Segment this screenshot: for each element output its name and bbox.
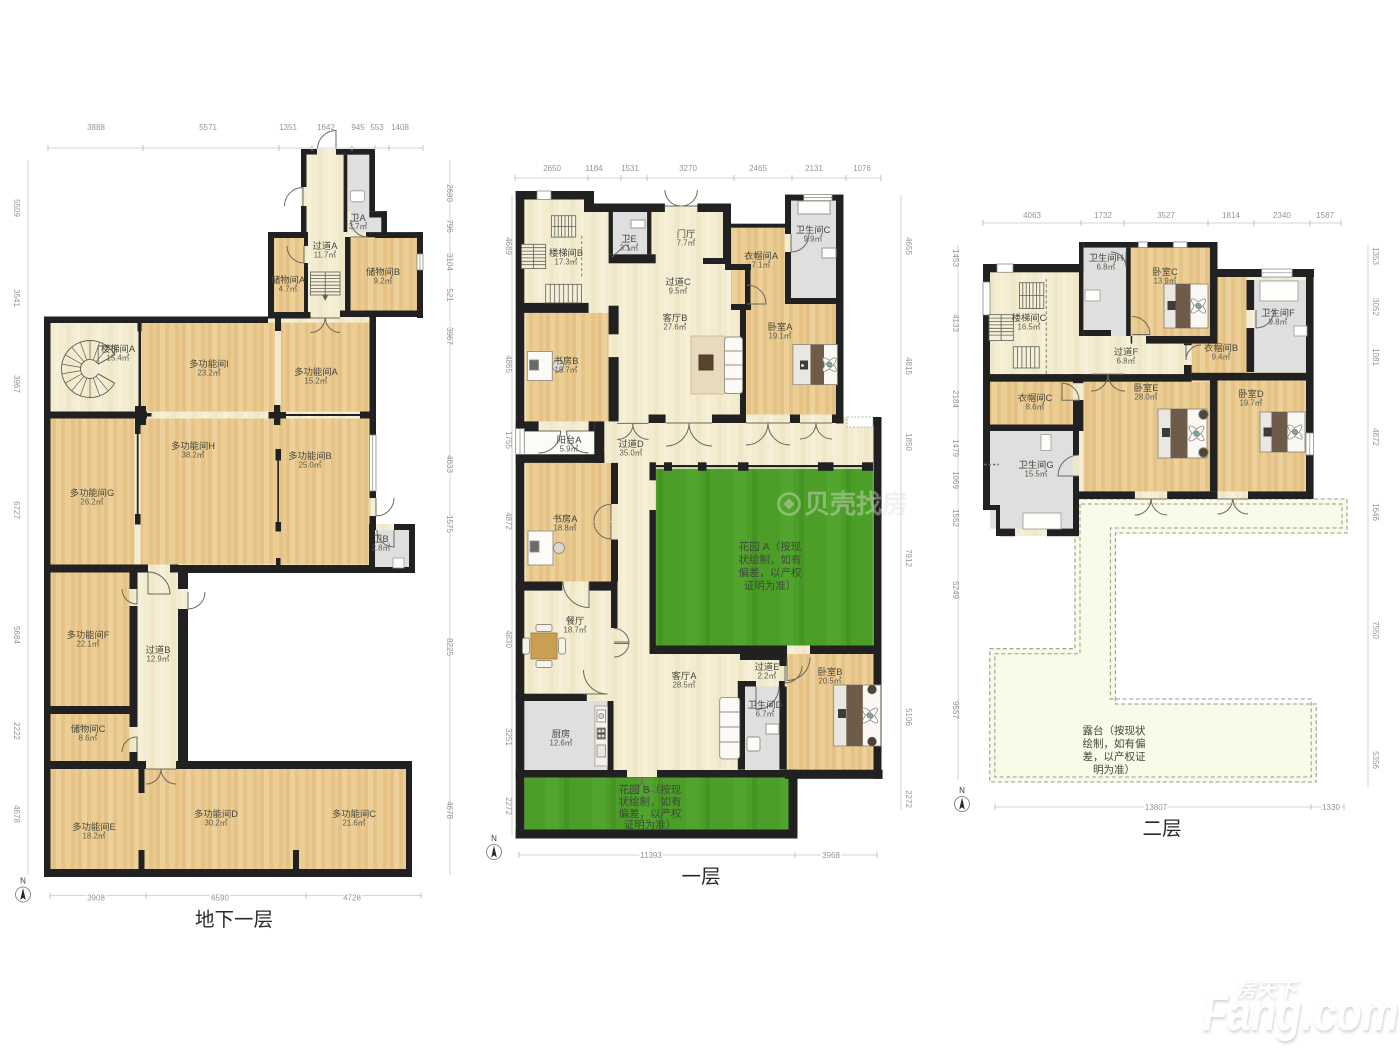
svg-text:9.4㎡: 9.4㎡ — [1212, 353, 1231, 362]
svg-text:553: 553 — [370, 123, 384, 132]
svg-text:衣帽间A: 衣帽间A — [744, 250, 779, 261]
svg-text:花园 B（按现: 花园 B（按现 — [619, 783, 682, 796]
svg-text:2222: 2222 — [12, 722, 21, 740]
svg-text:28.5㎡: 28.5㎡ — [673, 681, 696, 690]
svg-text:多功能间C: 多功能间C — [332, 808, 376, 819]
svg-text:2184: 2184 — [951, 390, 960, 408]
svg-text:1552: 1552 — [951, 509, 960, 527]
svg-text:11393: 11393 — [640, 851, 662, 860]
svg-text:4815: 4815 — [904, 357, 913, 375]
svg-text:3888: 3888 — [87, 123, 105, 132]
svg-text:8.6㎡: 8.6㎡ — [79, 734, 98, 743]
svg-text:过道E: 过道E — [755, 661, 780, 672]
svg-text:4.7㎡: 4.7㎡ — [279, 285, 298, 294]
svg-text:楼梯间C: 楼梯间C — [1012, 312, 1047, 323]
svg-text:4865: 4865 — [504, 355, 513, 373]
svg-text:1850: 1850 — [904, 433, 913, 451]
svg-text:20.5㎡: 20.5㎡ — [819, 677, 842, 686]
svg-text:2131: 2131 — [805, 164, 823, 173]
svg-text:卧室D: 卧室D — [1238, 388, 1264, 399]
svg-text:卧室E: 卧室E — [1134, 382, 1159, 393]
svg-text:Fang.com: Fang.com — [1202, 983, 1398, 1042]
svg-text:6.7㎡: 6.7㎡ — [756, 710, 775, 719]
svg-text:6590: 6590 — [211, 894, 229, 903]
svg-text:1353: 1353 — [1371, 247, 1380, 265]
svg-text:1646: 1646 — [1371, 503, 1380, 521]
svg-text:1479: 1479 — [951, 439, 960, 457]
svg-text:13.9㎡: 13.9㎡ — [1154, 277, 1177, 286]
svg-text:衣帽间B: 衣帽间B — [1204, 342, 1238, 353]
svg-text:2.2㎡: 2.2㎡ — [758, 672, 777, 681]
svg-text:945: 945 — [351, 123, 365, 132]
svg-text:1755: 1755 — [504, 431, 513, 449]
svg-text:4133: 4133 — [951, 314, 960, 332]
svg-text:521: 521 — [445, 288, 454, 302]
svg-text:30.2㎡: 30.2㎡ — [205, 819, 228, 828]
svg-text:3968: 3968 — [822, 851, 840, 860]
svg-text:多功能间I: 多功能间I — [189, 358, 229, 369]
svg-text:3052: 3052 — [1371, 298, 1380, 316]
svg-text:4872: 4872 — [1371, 428, 1380, 446]
svg-text:4678: 4678 — [445, 801, 454, 819]
svg-text:1408: 1408 — [391, 123, 409, 132]
svg-text:餐厅: 餐厅 — [566, 615, 585, 626]
svg-text:书房B: 书房B — [554, 355, 579, 366]
svg-text:证明为准）: 证明为准） — [744, 580, 797, 592]
svg-text:17.3㎡: 17.3㎡ — [555, 258, 578, 267]
svg-text:3967: 3967 — [445, 327, 454, 345]
svg-text:5.9㎡: 5.9㎡ — [560, 445, 579, 454]
svg-text:7.7㎡: 7.7㎡ — [677, 239, 696, 248]
svg-text:露台（按现状: 露台（按现状 — [1083, 724, 1146, 737]
svg-text:储物间C: 储物间C — [71, 723, 106, 734]
svg-text:贝壳找房: 贝壳找房 — [804, 489, 908, 519]
svg-text:18.7㎡: 18.7㎡ — [564, 626, 587, 635]
svg-text:4655: 4655 — [904, 237, 913, 255]
svg-text:4063: 4063 — [1023, 211, 1041, 220]
svg-text:6727: 6727 — [12, 501, 21, 519]
svg-text:1330: 1330 — [1322, 803, 1340, 812]
svg-text:5356: 5356 — [1371, 751, 1380, 769]
svg-text:储物间A: 储物间A — [271, 274, 306, 285]
svg-text:卫生间D: 卫生间D — [748, 699, 783, 710]
svg-text:卫生间G: 卫生间G — [1018, 459, 1053, 470]
svg-text:3270: 3270 — [679, 164, 697, 173]
svg-text:23.2㎡: 23.2㎡ — [198, 369, 221, 378]
svg-text:多功能间F: 多功能间F — [67, 629, 110, 640]
svg-text:25.0㎡: 25.0㎡ — [299, 461, 322, 470]
svg-text:11.7㎡: 11.7㎡ — [314, 251, 337, 260]
svg-text:3541: 3541 — [12, 289, 21, 307]
svg-text:7550: 7550 — [1371, 621, 1380, 639]
svg-text:1587: 1587 — [1316, 211, 1334, 220]
svg-text:28.0㎡: 28.0㎡ — [1135, 393, 1158, 402]
svg-text:6.8㎡: 6.8㎡ — [1117, 357, 1136, 366]
svg-text:1642: 1642 — [317, 123, 335, 132]
svg-text:1069: 1069 — [951, 471, 960, 489]
svg-text:楼梯间A: 楼梯间A — [101, 343, 136, 354]
svg-text:卫生间H: 卫生间H — [1089, 252, 1124, 263]
svg-text:5106: 5106 — [904, 708, 913, 726]
svg-text:楼梯间B: 楼梯间B — [549, 247, 583, 258]
svg-text:15.5㎡: 15.5㎡ — [1025, 470, 1048, 479]
svg-text:4830: 4830 — [504, 630, 513, 648]
svg-text:5684: 5684 — [12, 626, 21, 644]
svg-text:3527: 3527 — [1157, 211, 1175, 220]
svg-text:过道C: 过道C — [665, 276, 691, 287]
svg-text:7912: 7912 — [904, 549, 913, 567]
svg-text:2.8㎡: 2.8㎡ — [372, 544, 391, 553]
svg-text:1453: 1453 — [951, 249, 960, 267]
svg-text:二层: 二层 — [1142, 818, 1181, 840]
svg-text:12.9㎡: 12.9㎡ — [147, 655, 170, 664]
svg-text:3.1㎡: 3.1㎡ — [620, 244, 639, 253]
svg-text:19.1㎡: 19.1㎡ — [769, 332, 792, 341]
svg-text:2272: 2272 — [504, 797, 513, 815]
svg-text:客厅B: 客厅B — [663, 312, 688, 323]
svg-text:卧室B: 卧室B — [818, 666, 843, 677]
svg-text:明为准）: 明为准） — [1093, 764, 1135, 776]
svg-text:3251: 3251 — [504, 728, 513, 746]
svg-text:N: N — [959, 786, 965, 795]
svg-text:偏差，以产权: 偏差，以产权 — [739, 566, 802, 579]
svg-text:1814: 1814 — [1222, 211, 1240, 220]
svg-text:19.7㎡: 19.7㎡ — [1240, 399, 1263, 408]
svg-text:12.6㎡: 12.6㎡ — [550, 739, 573, 748]
svg-text:8225: 8225 — [445, 638, 454, 656]
svg-text:9.2㎡: 9.2㎡ — [374, 277, 393, 286]
svg-text:卫B: 卫B — [373, 534, 389, 544]
svg-text:2650: 2650 — [543, 164, 561, 173]
svg-text:状绘制，如有: 状绘制，如有 — [619, 795, 682, 808]
svg-text:1531: 1531 — [621, 164, 639, 173]
svg-text:阳台A: 阳台A — [557, 434, 583, 445]
svg-text:5571: 5571 — [199, 123, 217, 132]
svg-text:2690: 2690 — [445, 184, 454, 202]
svg-text:1351: 1351 — [279, 123, 297, 132]
svg-text:客厅A: 客厅A — [672, 670, 698, 681]
svg-text:绘制，如有偏: 绘制，如有偏 — [1083, 737, 1146, 750]
svg-text:3104: 3104 — [445, 253, 454, 271]
svg-text:状绘制，如有: 状绘制，如有 — [739, 553, 802, 566]
svg-text:4872: 4872 — [504, 512, 513, 530]
svg-text:4728: 4728 — [343, 894, 361, 903]
svg-text:厨房: 厨房 — [552, 728, 571, 739]
svg-text:796: 796 — [445, 219, 454, 233]
svg-text:2465: 2465 — [749, 164, 767, 173]
svg-text:3.7㎡: 3.7㎡ — [349, 222, 368, 231]
svg-text:卧室A: 卧室A — [768, 321, 794, 332]
svg-text:26.2㎡: 26.2㎡ — [81, 498, 104, 507]
svg-text:16.5㎡: 16.5㎡ — [1018, 323, 1041, 332]
svg-text:多功能间D: 多功能间D — [194, 808, 238, 819]
svg-text:18.2㎡: 18.2㎡ — [83, 832, 106, 841]
svg-text:13807: 13807 — [1145, 803, 1168, 812]
svg-text:18.8㎡: 18.8㎡ — [554, 524, 577, 533]
svg-text:卫E: 卫E — [621, 234, 637, 244]
svg-text:1081: 1081 — [1371, 348, 1380, 366]
svg-text:9557: 9557 — [951, 701, 960, 719]
svg-text:5509: 5509 — [12, 199, 21, 217]
svg-text:9.5㎡: 9.5㎡ — [669, 287, 688, 296]
svg-text:衣帽间C: 衣帽间C — [1018, 392, 1053, 403]
svg-text:卧室C: 卧室C — [1152, 266, 1178, 277]
svg-text:21.6㎡: 21.6㎡ — [343, 819, 366, 828]
svg-text:地下一层: 地下一层 — [195, 909, 273, 931]
svg-text:卫生间F: 卫生间F — [1261, 307, 1295, 318]
svg-text:18.7㎡: 18.7㎡ — [555, 366, 578, 375]
svg-text:门厅: 门厅 — [677, 228, 696, 239]
svg-text:9.8㎡: 9.8㎡ — [1269, 318, 1288, 327]
svg-text:5249: 5249 — [951, 581, 960, 599]
svg-text:22.1㎡: 22.1㎡ — [77, 640, 100, 649]
svg-text:一层: 一层 — [681, 866, 720, 888]
svg-text:多功能间E: 多功能间E — [72, 821, 115, 832]
svg-text:4833: 4833 — [445, 455, 454, 473]
svg-text:N: N — [491, 834, 497, 843]
svg-text:6.8㎡: 6.8㎡ — [1097, 263, 1116, 272]
svg-text:8.6㎡: 8.6㎡ — [1026, 403, 1045, 412]
svg-text:2340: 2340 — [1273, 211, 1291, 220]
svg-text:2272: 2272 — [904, 790, 913, 808]
svg-text:27.6㎡: 27.6㎡ — [664, 323, 687, 332]
svg-text:1732: 1732 — [1094, 211, 1112, 220]
svg-text:4689: 4689 — [504, 237, 513, 255]
svg-text:4678: 4678 — [12, 805, 21, 823]
svg-text:1076: 1076 — [853, 164, 871, 173]
svg-text:差，以产权证: 差，以产权证 — [1083, 750, 1146, 763]
svg-text:15.4㎡: 15.4㎡ — [107, 354, 130, 363]
svg-text:38.2㎡: 38.2㎡ — [182, 451, 205, 460]
svg-text:7.1㎡: 7.1㎡ — [752, 261, 771, 270]
svg-text:多功能间B: 多功能间B — [288, 450, 331, 461]
svg-text:1575: 1575 — [445, 515, 454, 533]
svg-text:9.9㎡: 9.9㎡ — [804, 235, 823, 244]
svg-text:证明为准）: 证明为准） — [624, 819, 677, 831]
svg-text:1184: 1184 — [585, 164, 603, 173]
svg-text:书房A: 书房A — [553, 513, 579, 524]
svg-text:多功能间G: 多功能间G — [70, 487, 114, 498]
svg-text:N: N — [20, 877, 26, 886]
svg-text:花园 A（按现: 花园 A（按现 — [739, 540, 802, 553]
svg-text:房天下: 房天下 — [1235, 979, 1300, 1002]
svg-text:过道F: 过道F — [1114, 346, 1139, 357]
svg-text:3908: 3908 — [87, 894, 105, 903]
svg-text:多功能间A: 多功能间A — [294, 366, 338, 377]
svg-text:过道B: 过道B — [146, 644, 171, 655]
svg-text:储物间B: 储物间B — [366, 266, 400, 277]
svg-text:卫生间C: 卫生间C — [796, 224, 831, 235]
svg-text:3967: 3967 — [12, 375, 21, 393]
svg-text:过道D: 过道D — [618, 438, 644, 449]
svg-text:35.0㎡: 35.0㎡ — [620, 449, 643, 458]
svg-text:15.2㎡: 15.2㎡ — [305, 377, 328, 386]
svg-text:多功能间H: 多功能间H — [171, 440, 215, 451]
svg-text:过道A: 过道A — [313, 240, 339, 251]
